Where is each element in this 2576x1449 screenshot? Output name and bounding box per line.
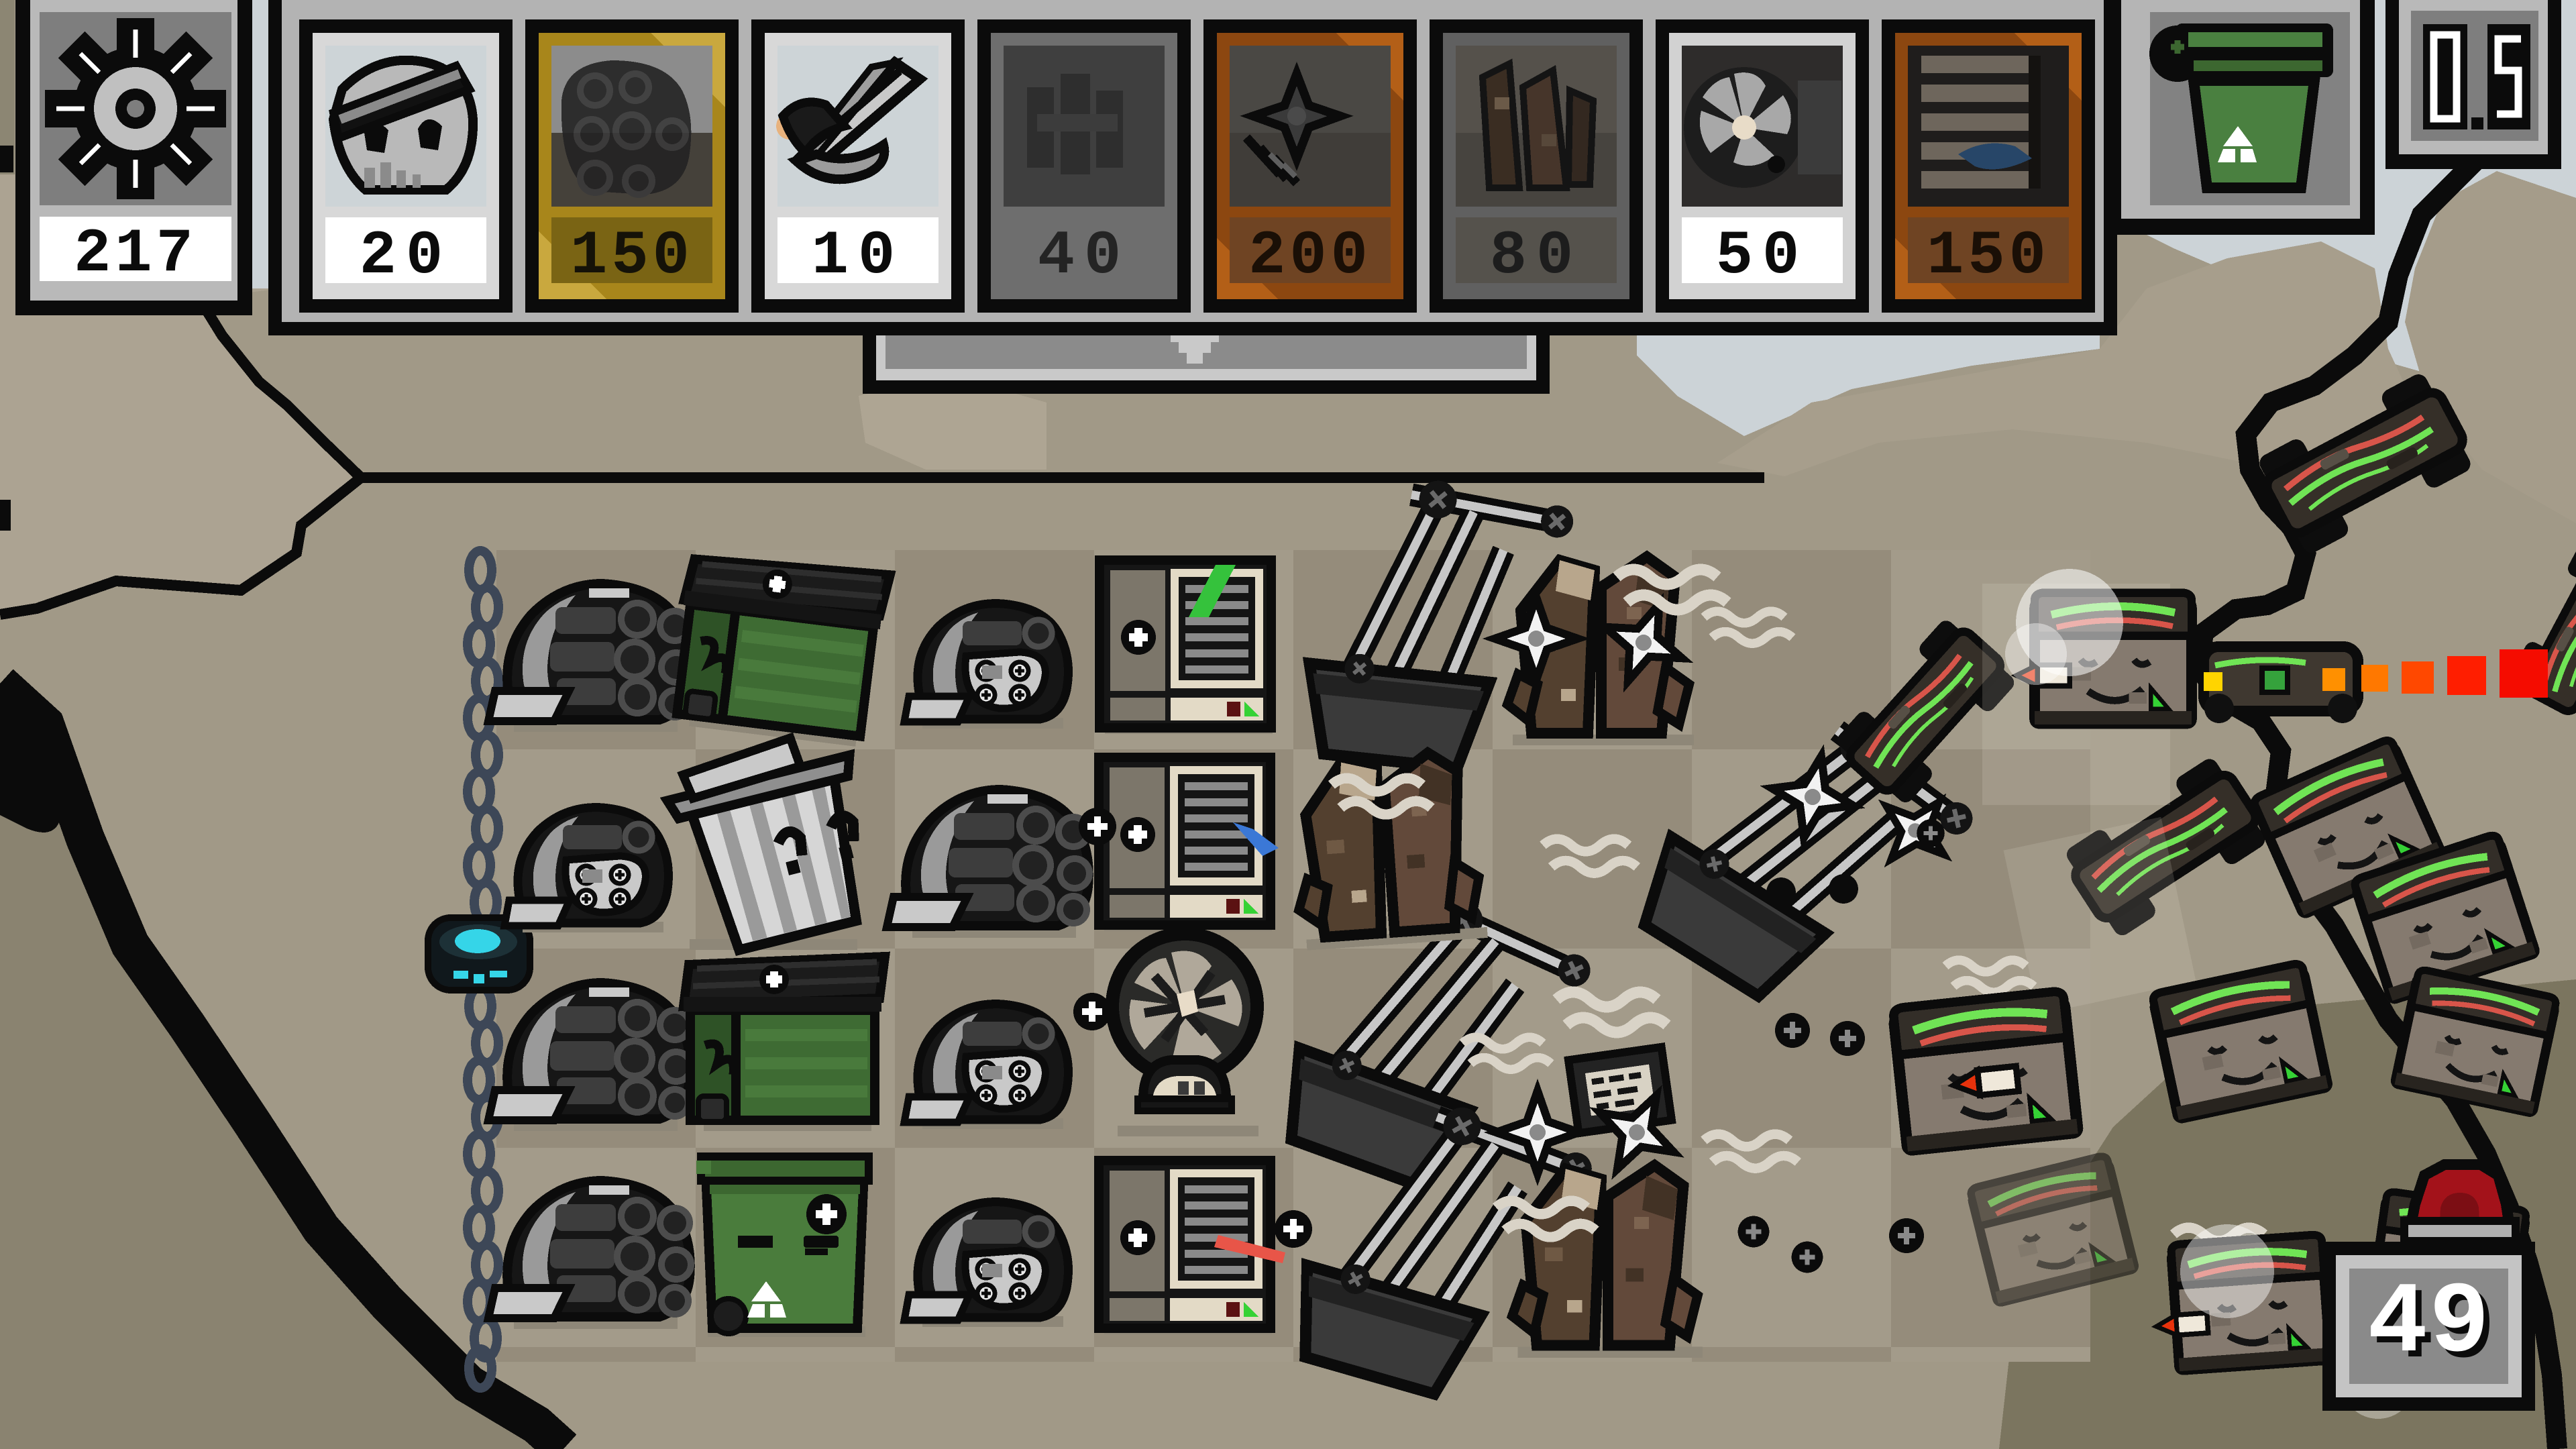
svg-text:200: 200 (1248, 221, 1372, 291)
svg-text:50: 50 (1716, 221, 1809, 291)
svg-text:40: 40 (1038, 221, 1130, 291)
svg-text:80: 80 (1490, 221, 1582, 291)
svg-text:150: 150 (1927, 221, 2050, 291)
svg-text:150: 150 (570, 221, 694, 291)
svg-text:49: 49 (2367, 1267, 2491, 1381)
svg-text:217: 217 (74, 219, 197, 289)
svg-text:20: 20 (360, 221, 452, 291)
svg-text:10: 10 (812, 221, 904, 291)
